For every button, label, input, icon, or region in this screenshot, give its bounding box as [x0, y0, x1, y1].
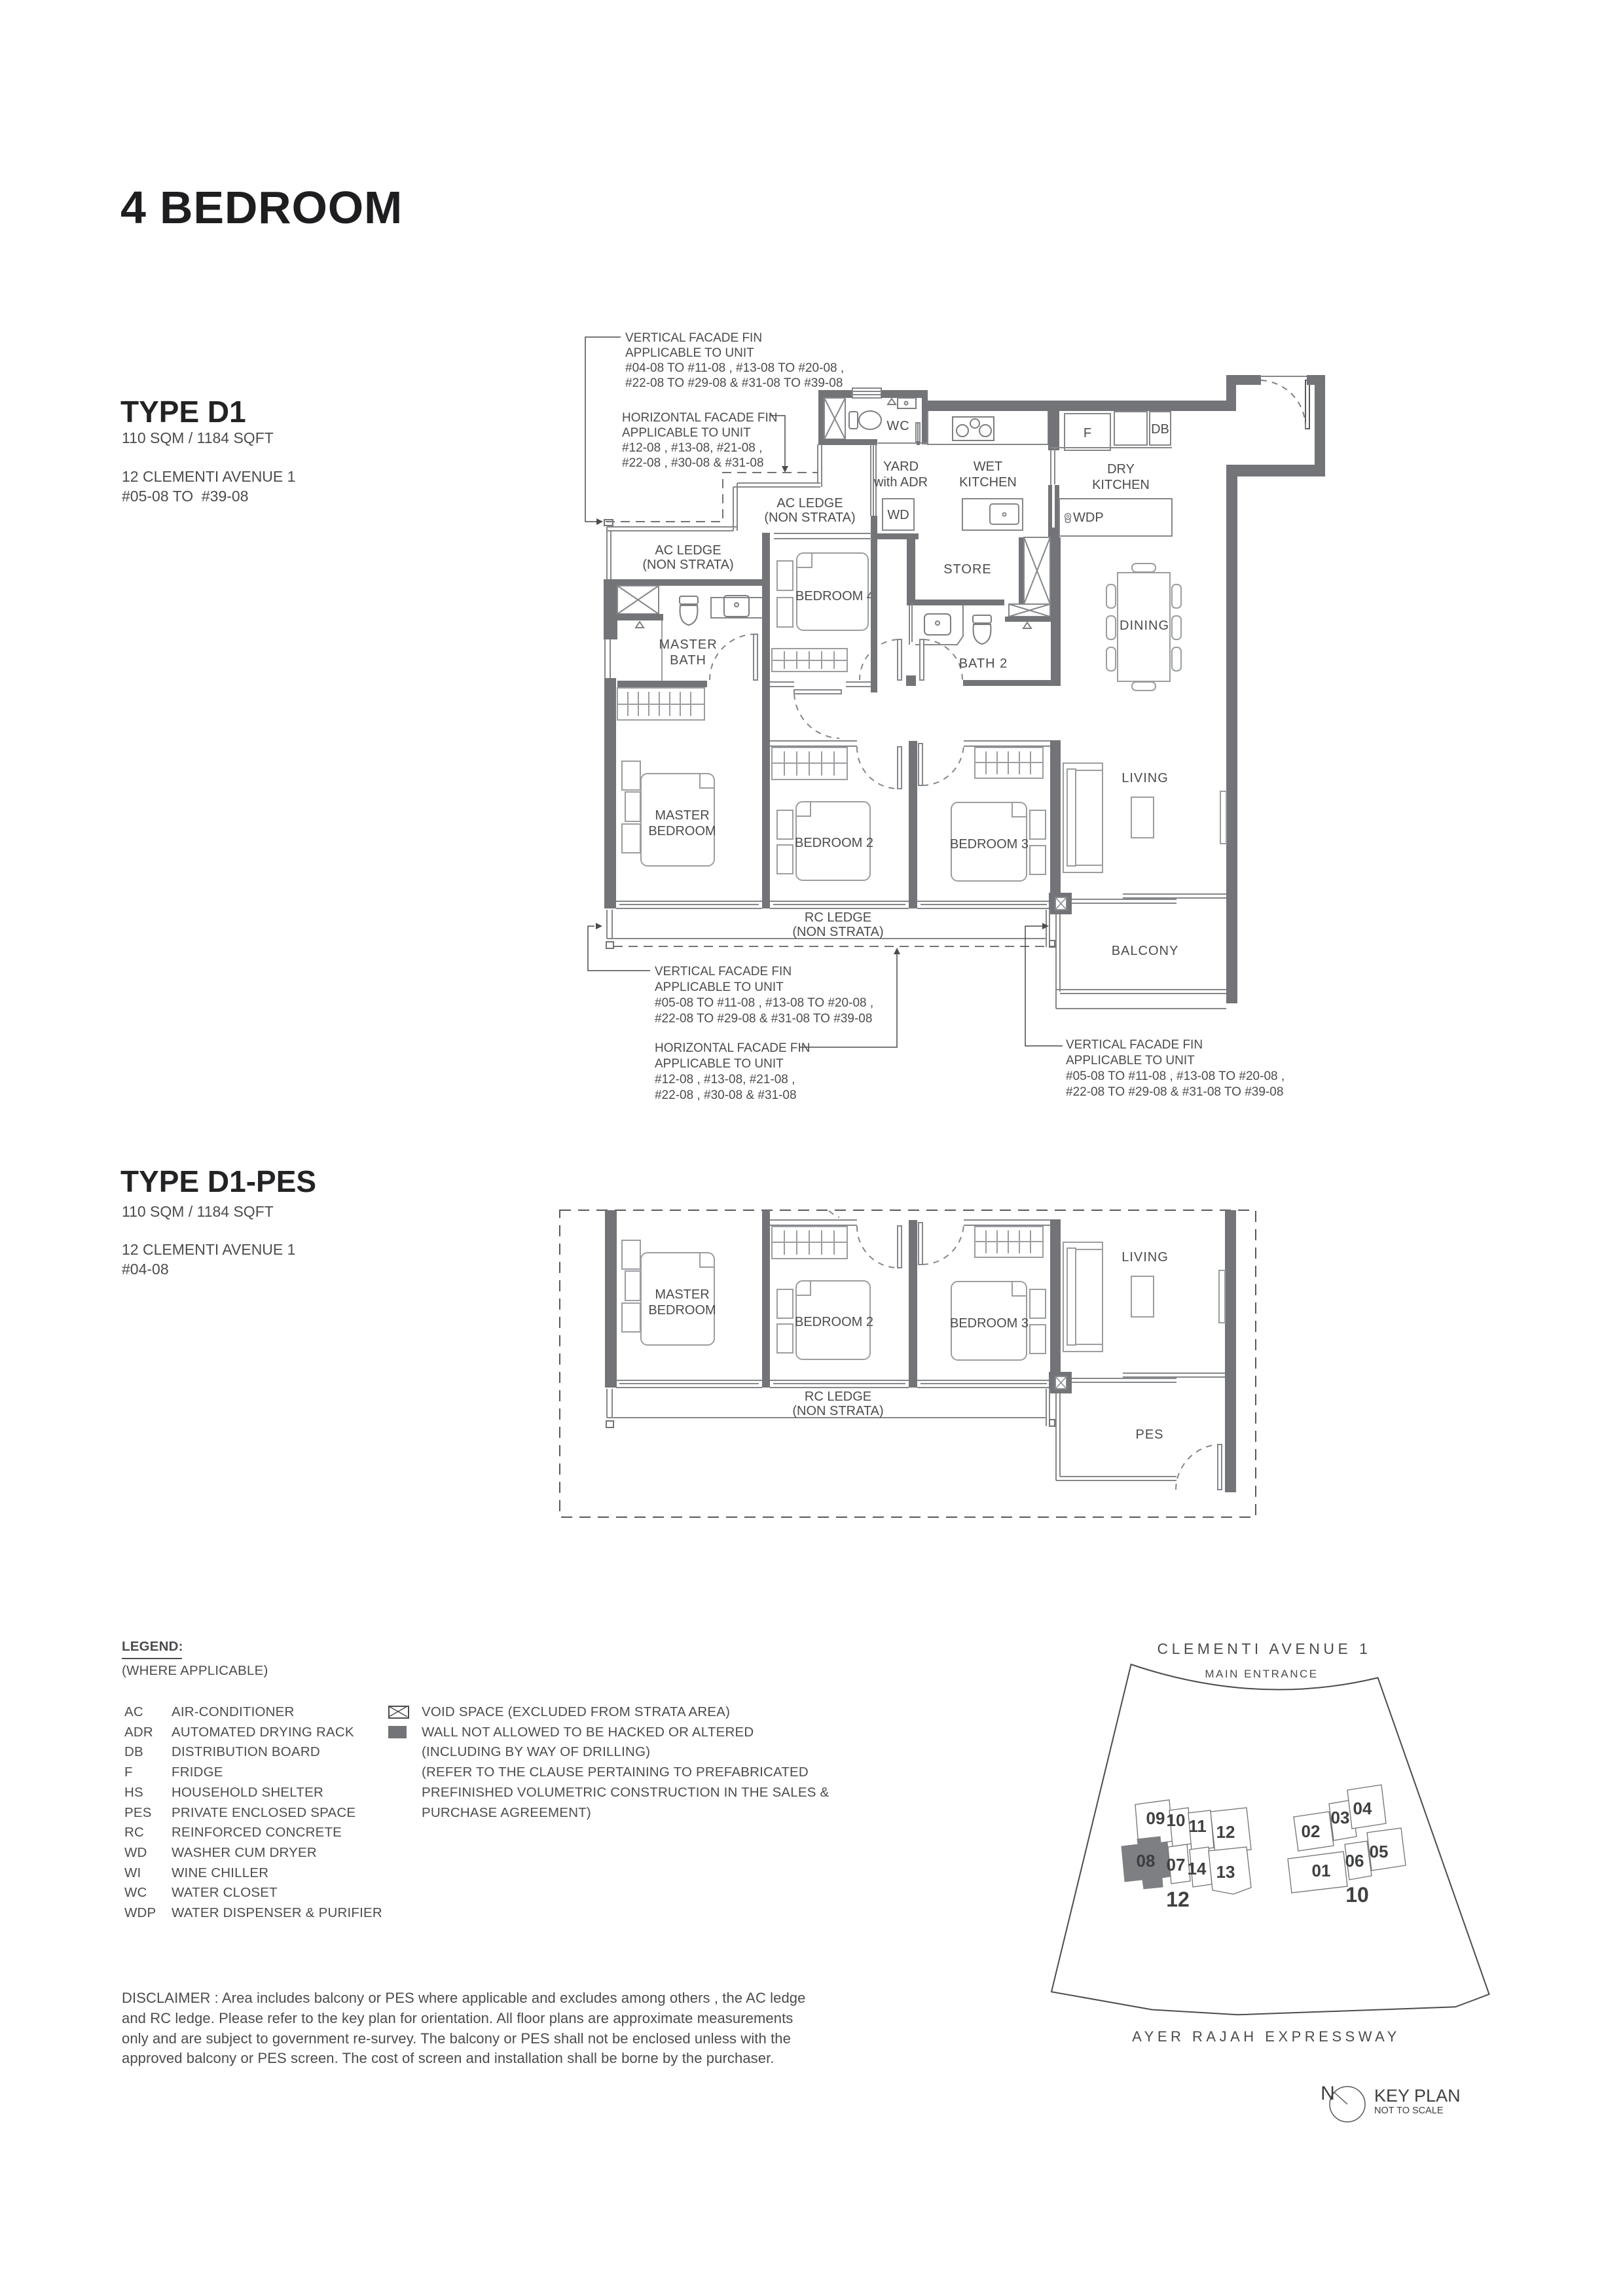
svg-text:WET: WET: [974, 459, 1002, 474]
svg-text:02: 02: [1302, 1821, 1321, 1841]
svg-text:#22-08 , #30-08 & #31-08: #22-08 , #30-08 & #31-08: [622, 456, 764, 470]
svg-text:WDP: WDP: [1073, 511, 1104, 525]
svg-text:MASTER: MASTER: [655, 808, 709, 823]
svg-text:HORIZONTAL FACADE FIN: HORIZONTAL FACADE FIN: [622, 411, 778, 425]
svg-text:with ADR: with ADR: [873, 475, 928, 490]
svg-text:07: 07: [1167, 1855, 1186, 1874]
svg-text:KEY PLAN: KEY PLAN: [1374, 2086, 1461, 2106]
svg-text:12: 12: [1166, 1888, 1190, 1911]
svg-text:NOT TO SCALE: NOT TO SCALE: [1374, 2106, 1444, 2116]
svg-text:YARD: YARD: [883, 459, 919, 474]
svg-text:BEDROOM 4: BEDROOM 4: [795, 589, 874, 603]
svg-text:LIVING: LIVING: [1122, 1250, 1169, 1265]
svg-text:(NON STRATA): (NON STRATA): [792, 1404, 883, 1418]
svg-text:#04-08 TO #11-08 , #13-08 TO #: #04-08 TO #11-08 , #13-08 TO #20-08 ,: [625, 361, 844, 375]
svg-text:13: 13: [1216, 1862, 1235, 1882]
svg-text:#05-08 TO #11-08 , #13-08 TO #: #05-08 TO #11-08 , #13-08 TO #20-08 ,: [1066, 1069, 1285, 1083]
svg-text:CLEMENTI AVENUE 1: CLEMENTI AVENUE 1: [1158, 1640, 1372, 1657]
svg-text:04: 04: [1353, 1799, 1372, 1818]
svg-text:N: N: [1321, 2083, 1335, 2104]
svg-text:BEDROOM 3: BEDROOM 3: [950, 1316, 1029, 1331]
svg-text:(NON STRATA): (NON STRATA): [792, 925, 883, 939]
svg-text:VERTICAL FACADE FIN: VERTICAL FACADE FIN: [655, 965, 792, 978]
svg-text:#12-08 , #13-08, #21-08 ,: #12-08 , #13-08, #21-08 ,: [622, 441, 762, 455]
svg-text:BEDROOM 2: BEDROOM 2: [795, 836, 873, 850]
svg-text:09: 09: [1146, 1808, 1165, 1828]
svg-text:APPLICABLE TO UNIT: APPLICABLE TO UNIT: [622, 426, 751, 440]
svg-text:#12-08 , #13-08, #21-08 ,: #12-08 , #13-08, #21-08 ,: [655, 1073, 795, 1086]
svg-text:10: 10: [1167, 1810, 1186, 1830]
svg-text:WC: WC: [886, 419, 909, 433]
svg-text:03: 03: [1331, 1808, 1350, 1827]
svg-text:#22-08 TO #29-08 & #31-08 TO #: #22-08 TO #29-08 & #31-08 TO #39-08: [1066, 1085, 1283, 1099]
svg-text:LIVING: LIVING: [1122, 771, 1169, 785]
svg-text:AC LEDGE: AC LEDGE: [776, 496, 843, 511]
svg-text:APPLICABLE TO UNIT: APPLICABLE TO UNIT: [1066, 1054, 1195, 1067]
svg-text:MAIN ENTRANCE: MAIN ENTRANCE: [1205, 1668, 1318, 1680]
svg-text:APPLICABLE TO UNIT: APPLICABLE TO UNIT: [625, 346, 754, 360]
svg-text:AYER RAJAH EXPRESSWAY: AYER RAJAH EXPRESSWAY: [1132, 2028, 1400, 2045]
svg-text:KITCHEN: KITCHEN: [959, 475, 1017, 490]
svg-text:HORIZONTAL FACADE FIN: HORIZONTAL FACADE FIN: [655, 1041, 811, 1055]
svg-text:AC LEDGE: AC LEDGE: [655, 543, 721, 558]
svg-text:BATH 2: BATH 2: [959, 656, 1008, 671]
svg-text:08: 08: [1137, 1851, 1156, 1871]
svg-text:MASTER: MASTER: [659, 637, 717, 652]
svg-text:DRY: DRY: [1107, 462, 1135, 476]
svg-text:APPLICABLE TO UNIT: APPLICABLE TO UNIT: [655, 1057, 784, 1071]
svg-text:BEDROOM 3: BEDROOM 3: [950, 837, 1029, 852]
svg-text:10: 10: [1345, 1883, 1369, 1907]
svg-text:STORE: STORE: [943, 562, 992, 577]
svg-text:APPLICABLE TO UNIT: APPLICABLE TO UNIT: [655, 980, 784, 994]
svg-text:VERTICAL FACADE FIN: VERTICAL FACADE FIN: [1066, 1038, 1203, 1052]
svg-text:#22-08 TO #29-08 & #31-08 TO #: #22-08 TO #29-08 & #31-08 TO #39-08: [625, 376, 843, 390]
svg-text:01: 01: [1312, 1861, 1331, 1880]
svg-text:(NON STRATA): (NON STRATA): [642, 558, 733, 572]
svg-text:DINING: DINING: [1120, 619, 1169, 633]
svg-text:KITCHEN: KITCHEN: [1092, 478, 1150, 492]
svg-text:14: 14: [1188, 1859, 1207, 1878]
svg-text:DB: DB: [1151, 422, 1169, 437]
svg-text:BEDROOM: BEDROOM: [648, 1303, 716, 1318]
svg-text:BALCONY: BALCONY: [1112, 944, 1179, 958]
svg-text:BEDROOM: BEDROOM: [648, 824, 716, 838]
svg-text:BATH: BATH: [670, 653, 706, 668]
svg-text:(NON STRATA): (NON STRATA): [764, 511, 855, 525]
svg-text:11: 11: [1188, 1816, 1207, 1836]
svg-text:MASTER: MASTER: [655, 1287, 709, 1302]
svg-text:RC LEDGE: RC LEDGE: [805, 1390, 871, 1404]
svg-text:06: 06: [1345, 1851, 1364, 1871]
svg-text:#05-08 TO #11-08 , #13-08 TO #: #05-08 TO #11-08 , #13-08 TO #20-08 ,: [655, 996, 873, 1010]
svg-text:05: 05: [1370, 1842, 1389, 1861]
svg-text:VERTICAL FACADE FIN: VERTICAL FACADE FIN: [625, 331, 762, 345]
svg-text:RC LEDGE: RC LEDGE: [805, 910, 871, 925]
svg-text:#22-08 TO #29-08 & #31-08 TO #: #22-08 TO #29-08 & #31-08 TO #39-08: [655, 1012, 872, 1026]
svg-text:WD: WD: [887, 508, 909, 522]
svg-text:12: 12: [1216, 1822, 1235, 1842]
svg-text:BEDROOM 2: BEDROOM 2: [795, 1315, 873, 1329]
svg-text:PES: PES: [1135, 1427, 1163, 1442]
svg-text:F: F: [1084, 426, 1091, 440]
svg-text:#22-08 , #30-08 & #31-08: #22-08 , #30-08 & #31-08: [655, 1088, 797, 1102]
